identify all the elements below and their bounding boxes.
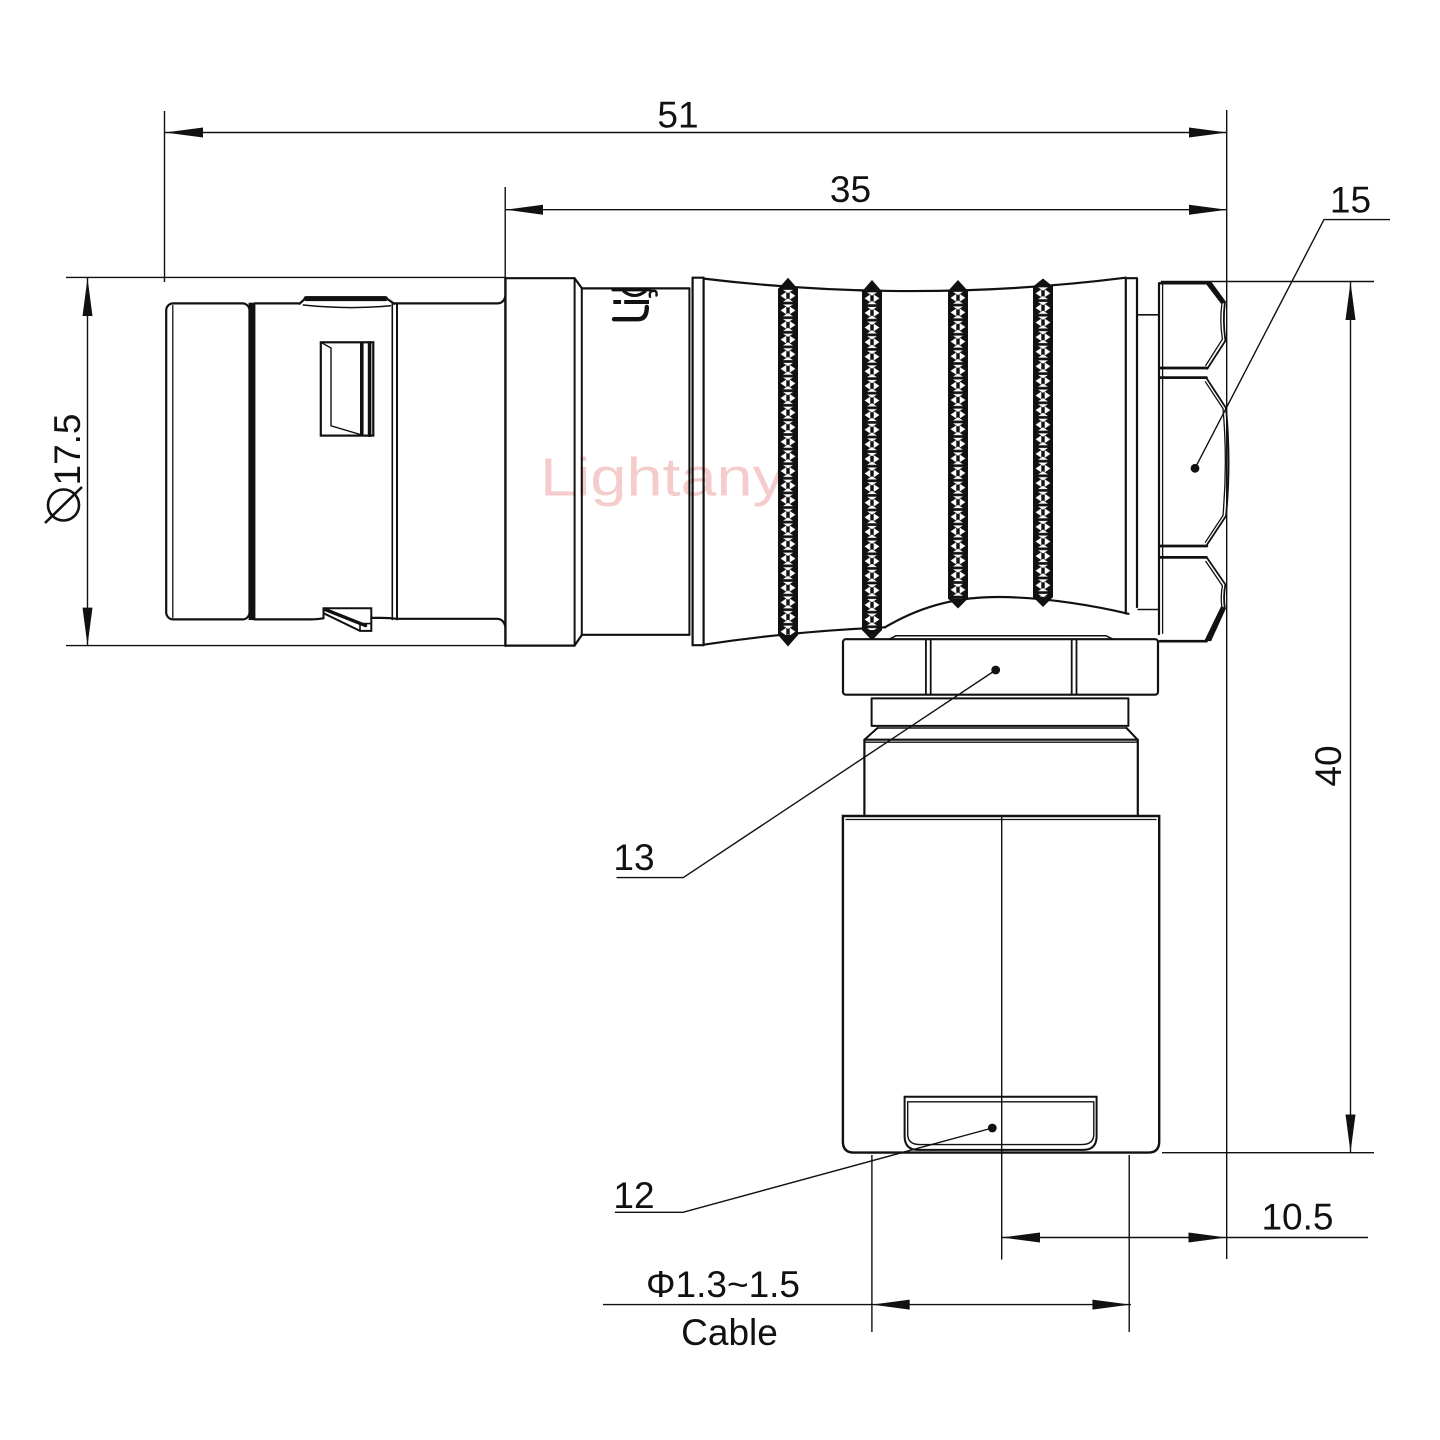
svg-text:Φ1.3~1.5: Φ1.3~1.5 [646,1264,800,1305]
svg-text:Lightany: Lightany [540,448,785,508]
svg-text:40: 40 [1308,745,1349,786]
svg-text:51: 51 [657,95,698,136]
svg-text:Cable: Cable [681,1312,778,1353]
svg-text:10.5: 10.5 [1261,1197,1333,1238]
svg-text:12: 12 [613,1175,654,1216]
svg-text:13: 13 [613,837,654,878]
svg-text:35: 35 [830,169,871,210]
svg-text:17.5: 17.5 [47,413,88,485]
svg-text:15: 15 [1330,180,1371,221]
